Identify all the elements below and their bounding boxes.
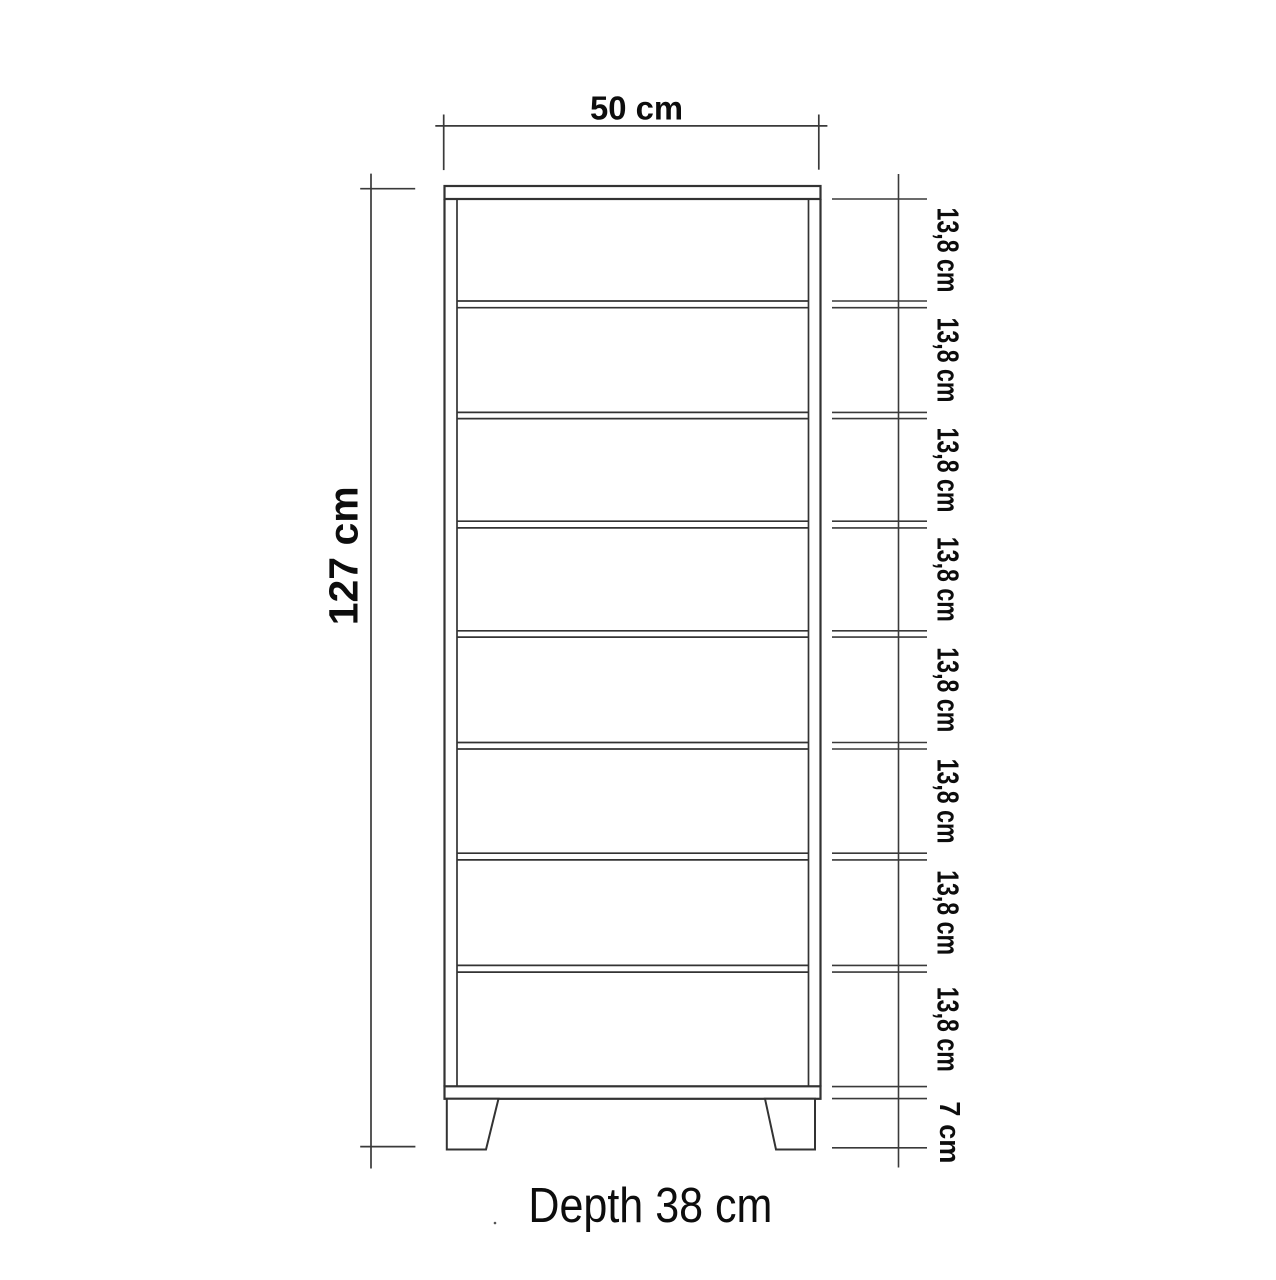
svg-text:13,8 cm: 13,8 cm [931,318,966,403]
svg-text:50 cm: 50 cm [590,89,683,126]
svg-text:7 cm: 7 cm [933,1101,965,1163]
svg-text:127 cm: 127 cm [320,486,366,625]
svg-text:13,8 cm: 13,8 cm [931,208,966,293]
svg-text:13,8 cm: 13,8 cm [931,537,966,622]
svg-text:13,8 cm: 13,8 cm [931,759,966,844]
svg-text:13,8 cm: 13,8 cm [931,428,966,513]
svg-text:13,8 cm: 13,8 cm [931,870,966,955]
svg-text:13,8 cm: 13,8 cm [931,647,966,732]
svg-text:13,8 cm: 13,8 cm [931,987,966,1072]
svg-text:Depth 38 cm: Depth 38 cm [528,1179,772,1233]
